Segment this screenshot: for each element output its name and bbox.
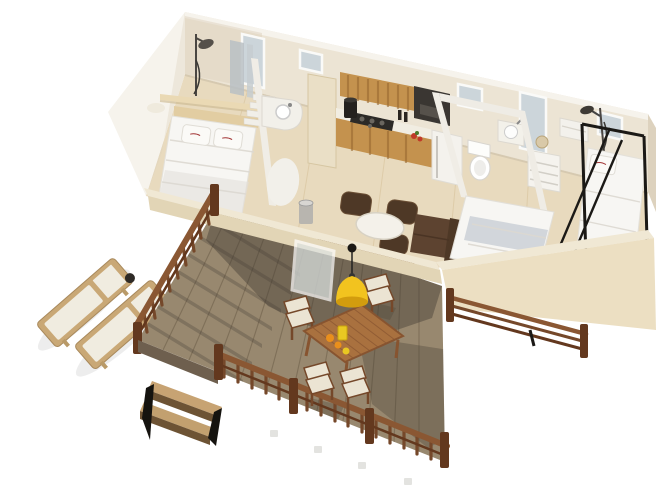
- corner-washbasin: [498, 120, 524, 146]
- yellow-tumbler: [338, 326, 347, 340]
- railing-post: [365, 408, 374, 444]
- sun-hat: [536, 136, 548, 148]
- glass-entry-door: [292, 241, 334, 300]
- right-end-wall: [648, 114, 656, 212]
- railing-post: [580, 324, 588, 358]
- deck-steps: [140, 381, 222, 446]
- floorplan-render: [0, 0, 656, 500]
- railing-post: [446, 288, 454, 322]
- coffee-maker: [344, 98, 357, 119]
- mirror-panel: [230, 40, 244, 96]
- mirror-panel: [247, 44, 253, 98]
- bed-pillow: [181, 124, 211, 146]
- railing-post: [210, 184, 219, 216]
- railing-post: [440, 432, 449, 468]
- hook: [530, 330, 534, 346]
- bed-pillow: [213, 128, 243, 150]
- trash-bin: [299, 200, 313, 224]
- window-kitchen: [300, 50, 322, 73]
- vanity-sink: [262, 96, 302, 130]
- railing-post: [214, 344, 223, 380]
- mobile-home-3d-floorplan: [0, 0, 656, 500]
- tall-cabinet: [308, 74, 336, 168]
- railing-post: [289, 378, 298, 414]
- corner-shelf: [147, 103, 165, 113]
- lamp-mount: [348, 244, 357, 253]
- lamp-rim: [336, 297, 368, 308]
